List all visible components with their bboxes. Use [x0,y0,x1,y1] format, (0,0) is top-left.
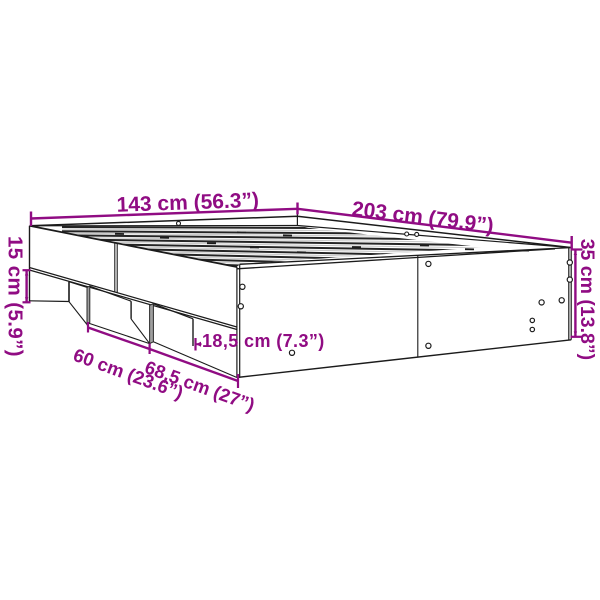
svg-text:15 cm (5.9”): 15 cm (5.9”) [4,236,27,357]
svg-text:35 cm (13.8”): 35 cm (13.8”) [576,239,598,360]
svg-text:18,5 cm (7.3”): 18,5 cm (7.3”) [202,331,325,351]
